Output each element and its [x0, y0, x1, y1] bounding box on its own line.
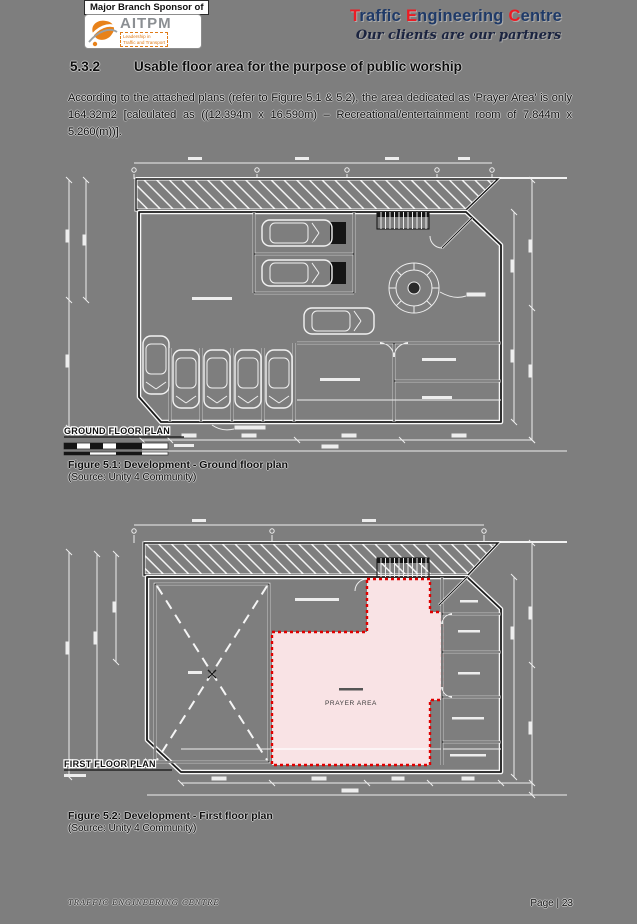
- aitpm-logo-name: AITPM: [120, 16, 172, 31]
- body-paragraph: According to the attached plans (refer t…: [68, 90, 572, 141]
- brand-title: TrafficEngineeringCentre: [350, 7, 567, 26]
- car-icon: [173, 350, 199, 408]
- caption-text: Figure 5.2: Development - First floor pl…: [68, 810, 273, 822]
- right-dimension-lines: [511, 540, 535, 798]
- car-icon: [204, 350, 230, 408]
- spiral-ornament: [389, 263, 485, 313]
- top-dimension-line: [132, 519, 486, 543]
- car-icon: [304, 308, 374, 334]
- left-dimension-lines: [66, 177, 89, 431]
- prayer-area-label: PRAYER AREA: [325, 700, 377, 707]
- section-title: Usable floor area for the purpose of pub…: [134, 59, 462, 74]
- prayer-area-sub-label: [339, 688, 363, 691]
- footer-company-name: TRAFFIC ENGINEERING CENTRE: [68, 897, 220, 907]
- svg-text:GROUND FLOOR PLAN: GROUND FLOOR PLAN: [64, 426, 170, 436]
- lower-right-rooms: [297, 343, 501, 422]
- aitpm-emblem-icon: [88, 17, 118, 47]
- caption-text: Figure 5.1: Development - Ground floor p…: [68, 459, 288, 471]
- car-icon: [262, 220, 332, 246]
- right-dimension-lines: [511, 177, 535, 443]
- car-icon: [235, 350, 261, 408]
- car-icon: [266, 350, 292, 408]
- upper-parking-bays: [254, 212, 354, 293]
- plan-title-label: GROUND FLOOR PLAN: [64, 426, 184, 437]
- first-floor-plan-drawing: PRAYER AREA: [62, 512, 586, 807]
- left-dimension-lines: [66, 549, 119, 780]
- svg-text:FIRST FLOOR PLAN: FIRST FLOOR PLAN: [64, 759, 156, 769]
- top-dimension-line: [132, 157, 494, 179]
- aitpm-logo: AITPM Leadership inTraffic and Transport: [84, 14, 202, 49]
- bottom-dimension-lines: [139, 425, 567, 451]
- middle-room: [295, 579, 367, 601]
- stair-treads: [377, 212, 429, 229]
- section-number: 5.3.2: [70, 59, 100, 74]
- car-icon: [143, 336, 169, 394]
- section-heading: 5.3.2 Usable floor area for the purpose …: [70, 59, 462, 74]
- right-rooms: [442, 577, 501, 765]
- plan-micro-label: [192, 297, 232, 300]
- caption-source: (Source: Unity 4 Community): [68, 472, 288, 483]
- brand-tagline: Our clients are our partners: [350, 28, 567, 43]
- brand-block: TrafficEngineeringCentre Our clients are…: [350, 7, 567, 43]
- boundary-hatch: [136, 178, 567, 210]
- aitpm-logo-tagline: Leadership inTraffic and Transport: [120, 32, 168, 47]
- prayer-area-region: PRAYER AREA: [272, 579, 442, 765]
- sponsor-text: Major Branch Sponsor of: [84, 0, 209, 15]
- figure-5-1-caption: Figure 5.1: Development - Ground floor p…: [68, 459, 288, 483]
- boundary-hatch: [144, 542, 567, 575]
- scale-bar: [64, 443, 194, 455]
- bottom-dimension-lines: [147, 777, 567, 795]
- caption-source: (Source: Unity 4 Community): [68, 823, 273, 834]
- ground-floor-plan-drawing: GROUND FLOOR PLAN: [62, 150, 586, 456]
- corner-partitions: [430, 218, 472, 248]
- car-icon: [262, 260, 332, 286]
- footer-page-number: Page | 23: [530, 898, 573, 909]
- lower-parking-bays: [143, 336, 294, 422]
- figure-5-2-caption: Figure 5.2: Development - First floor pl…: [68, 810, 273, 834]
- void-cross-room: [155, 584, 269, 762]
